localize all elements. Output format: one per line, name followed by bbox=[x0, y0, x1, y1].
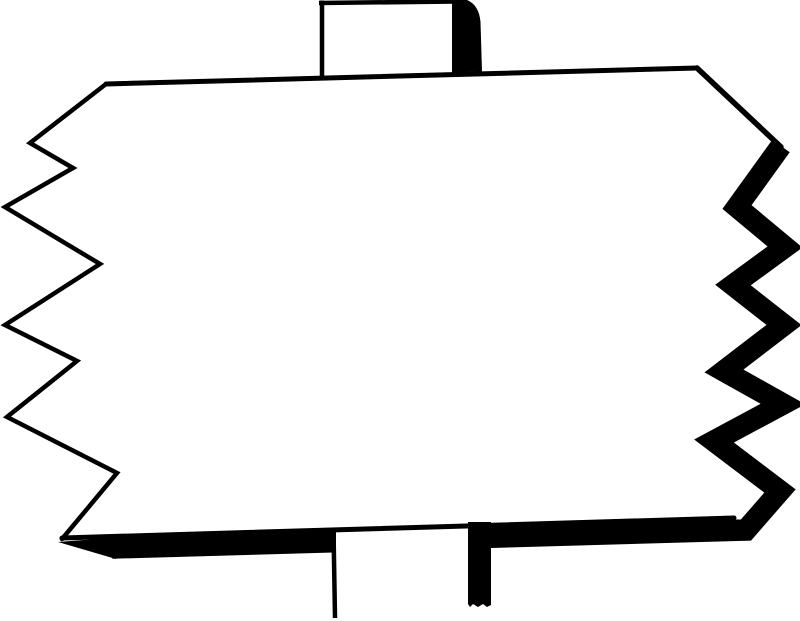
blank-sign-illustration: Blank wooden sign bbox=[0, 0, 800, 621]
top-post-top-outline bbox=[319, 2, 456, 4]
top-post-right-shadow bbox=[452, 0, 482, 73]
sign-board-face bbox=[5, 68, 779, 538]
bottom-post bbox=[334, 516, 492, 621]
top-post-face bbox=[320, 1, 455, 78]
bottom-post-right-shadow bbox=[468, 522, 491, 607]
clipart-blank-sign: Blank wooden sign bbox=[0, 0, 800, 621]
bottom-post-left-outline bbox=[334, 530, 336, 618]
top-post bbox=[319, 0, 482, 78]
